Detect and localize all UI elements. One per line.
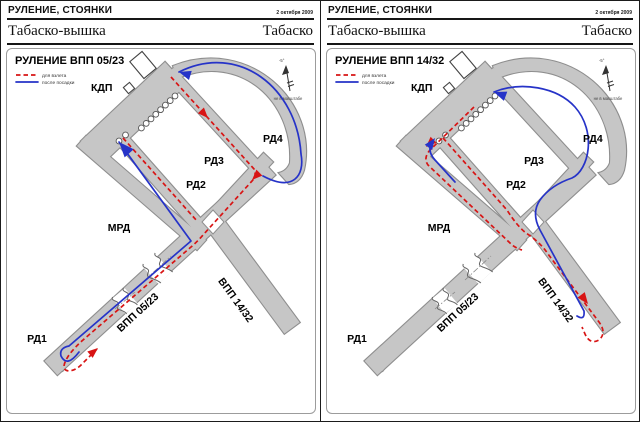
label-kdp: КДП <box>91 82 112 94</box>
station-callsign: Табаско-вышка <box>8 23 106 40</box>
pavement-fill <box>365 59 626 375</box>
chart-title: РУЛЕНИЕ ВПП 05/23 <box>15 55 124 67</box>
legend-landing-label: после посадки <box>42 81 75 86</box>
section-title: РУЛЕНИЕ, СТОЯНКИ <box>8 5 112 16</box>
chart-frame: РУЛЕНИЕ ВПП 05/23 для взлета после посад… <box>6 48 316 414</box>
label-kdp: КДП <box>411 82 432 94</box>
section-title: РУЛЕНИЕ, СТОЯНКИ <box>328 5 432 16</box>
label-rd2: РД2 <box>186 179 206 191</box>
airport-name: Табаско <box>582 23 632 40</box>
scale-note: не в масштабе <box>594 96 623 101</box>
airport-name: Табаско <box>263 23 313 40</box>
label-rd1: РД1 <box>27 333 47 345</box>
revision-date: 2 октября 2009 <box>595 10 632 16</box>
pavement-fill <box>45 59 306 375</box>
label-mrd: МРД <box>108 222 131 234</box>
station-callsign: Табаско-вышка <box>328 23 426 40</box>
label-mrd: МРД <box>428 222 451 234</box>
panel-header: РУЛЕНИЕ, СТОЯНКИ 2 октября 2009 <box>321 1 639 18</box>
legend-takeoff-label: для взлета <box>42 74 67 79</box>
station-rule <box>7 43 314 45</box>
scale-note: не в масштабе <box>274 96 303 101</box>
legend-landing-label: после посадки <box>362 81 395 86</box>
taxi-diagram-0523: РУЛЕНИЕ ВПП 05/23 для взлета после посад… <box>7 49 315 413</box>
label-rd1: РД1 <box>347 333 367 345</box>
panel-header: РУЛЕНИЕ, СТОЯНКИ 2 октября 2009 <box>1 1 320 18</box>
taxi-diagram-1432: РУЛЕНИЕ ВПП 14/32 для взлета после посад… <box>327 49 635 413</box>
label-rd3: РД3 <box>204 155 224 167</box>
north-declination: -5° <box>599 58 605 63</box>
legend: для взлета после посадки <box>336 74 395 86</box>
station-row: Табаско-вышка Табаско <box>1 20 320 43</box>
label-rd4: РД4 <box>583 133 603 145</box>
revision-date: 2 октября 2009 <box>276 10 313 16</box>
legend: для взлета после посадки <box>16 74 75 86</box>
station-rule <box>327 43 633 45</box>
panel-runway-1432: РУЛЕНИЕ, СТОЯНКИ 2 октября 2009 Табаско-… <box>320 1 639 421</box>
taxi-chart-page: РУЛЕНИЕ, СТОЯНКИ 2 октября 2009 Табаско-… <box>0 0 640 422</box>
station-row: Табаско-вышка Табаско <box>321 20 639 43</box>
label-rd3: РД3 <box>524 155 544 167</box>
chart-frame: РУЛЕНИЕ ВПП 14/32 для взлета после посад… <box>326 48 636 414</box>
north-declination: -5° <box>279 58 285 63</box>
label-rd2: РД2 <box>506 179 526 191</box>
chart-title: РУЛЕНИЕ ВПП 14/32 <box>335 55 444 67</box>
panel-runway-0523: РУЛЕНИЕ, СТОЯНКИ 2 октября 2009 Табаско-… <box>1 1 320 421</box>
label-rd4: РД4 <box>263 133 283 145</box>
legend-takeoff-label: для взлета <box>362 74 387 79</box>
